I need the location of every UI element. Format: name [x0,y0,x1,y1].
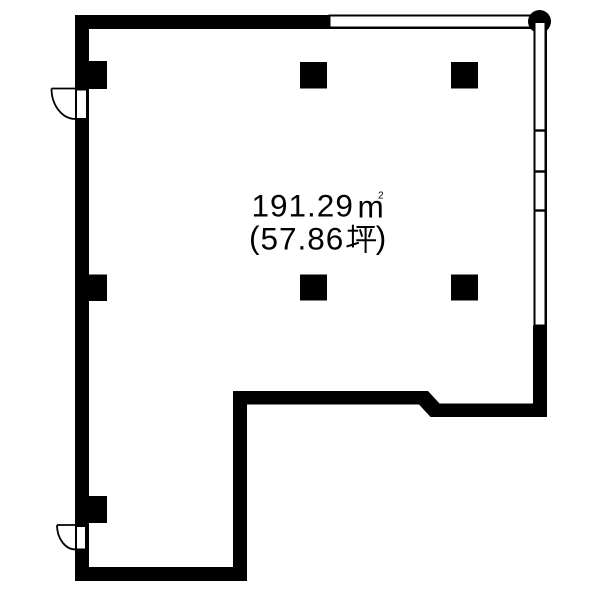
svg-text:191.29: 191.29 [252,188,354,224]
svg-text:2: 2 [378,191,384,202]
svg-text:): ) [376,219,387,255]
svg-text:(: ( [249,219,260,255]
svg-text:57.86: 57.86 [261,221,345,257]
